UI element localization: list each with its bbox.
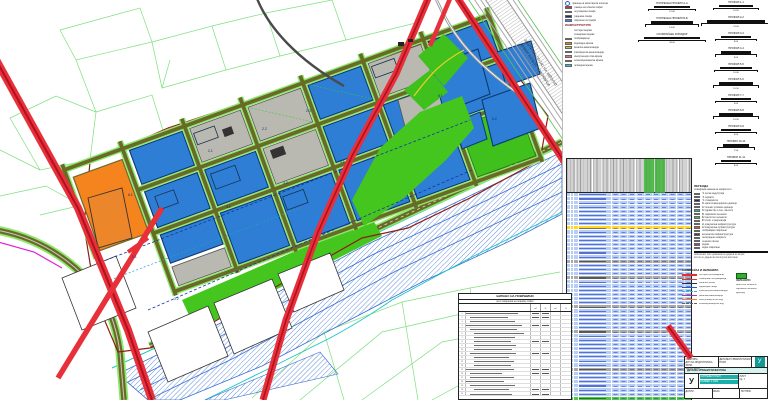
balance-table: БИЛАНС НА ПОВРШИНИ нето површина на план… (458, 293, 572, 400)
zone-label: 5.2 (492, 117, 497, 121)
legend-swatch (694, 237, 700, 239)
street-profile: ПОПРЕЧЕН ПРОФИЛ А-А12.00 (643, 2, 701, 13)
legend-swatch (694, 226, 700, 228)
profile-label: ПОПРЕЧЕН ПРОФИЛ А-А (656, 2, 687, 5)
title-block-line: бр. 7 (740, 378, 767, 381)
street-profiles-col-a: ПОПРЕЧЕН ПРОФИЛ А-А12.00ПОПРЕЧЕН ПРОФИЛ … (643, 2, 701, 48)
profile-dimension-line (715, 132, 757, 135)
legend-swatch (694, 230, 700, 232)
legend-lines: СООБРАЌАЈ И ЗЕЛЕНИЛО постојна сообраќајн… (682, 268, 768, 306)
profile-dimension-value: 21.00 (733, 26, 738, 28)
legend-main: граница на катастарска општинаграница на… (565, 1, 640, 67)
company-logo: У (755, 357, 765, 367)
legend-land-use-subtitle: планирана намена на земјиштето (694, 188, 768, 191)
zone-label: 1.2 (174, 297, 179, 301)
street-profile: ПРОФИЛ 1-110.50 (704, 1, 768, 12)
legend-swatch (565, 55, 572, 58)
zone-label: 6.1 (128, 193, 133, 197)
balance-header: м²%м²% (459, 304, 571, 312)
legend-item: гасоводна мрежа (565, 63, 640, 67)
legend-swatch (694, 247, 700, 249)
street-profile: ПРОФИЛ 4-49.00 (704, 47, 768, 58)
balance-col-header: % (561, 304, 571, 311)
circle-symbol-icon (565, 1, 570, 6)
line-sample (682, 291, 697, 292)
line-sample (682, 295, 697, 296)
street-profile: ПРОФИЛ 9-99.00 (704, 125, 768, 136)
line-sample (682, 274, 697, 276)
street-profile: ПОПРЕЧЕН ПРОФИЛ Б-Б14.00 (643, 17, 701, 28)
legend-swatch (565, 6, 572, 9)
balance-col-header: % (541, 304, 551, 311)
title-block-cell: ДАТУМ (685, 389, 713, 398)
title-block-project: ДЕТАЛЕН УРБАНИСТИЧКИ ПЛАН (719, 357, 752, 367)
plan-drawing-stage: ЗАШТИТЕН ПОЈАС НА АВТОПАТ ДЕМИР КАПИЈА -… (0, 0, 768, 400)
profile-dimension-line (715, 163, 757, 166)
profile-dimension-line (717, 147, 755, 150)
legend-swatch (694, 216, 700, 218)
legend-lines-title: СООБРАЌАЈ И ЗЕЛЕНИЛО (682, 268, 768, 272)
legend-swatch (565, 64, 572, 67)
profile-label: ПРОФИЛ 10-10 (727, 140, 745, 143)
profile-label: ПРОФИЛ 3-3 (728, 32, 744, 35)
profile-dimension-line (714, 70, 758, 73)
profile-dimension-line (713, 85, 759, 88)
legend-divider (694, 251, 768, 253)
legend-swatch (694, 220, 700, 222)
street-profile: ПРОФИЛ 10-107.50 (704, 140, 768, 151)
profile-dimension-value: 10.50 (733, 10, 738, 12)
plan-symbol: У (685, 374, 699, 388)
profile-label: ПРОФИЛ 5-5 (728, 63, 744, 66)
zone-label: 5.1 (438, 94, 443, 98)
profile-label: ПРОФИЛ 11-11 (727, 156, 745, 159)
street-profile: СООБРАЌАЕН КОРИДОР28.00 (643, 33, 701, 44)
balance-col-header: м² (531, 304, 541, 311)
line-sample (682, 283, 697, 284)
legend-swatch (565, 19, 572, 22)
zone-label: 2.1 (208, 149, 213, 153)
profile-label: ПРОФИЛ 9-9 (728, 125, 744, 128)
profile-label: ПРОФИЛ 1-1 (728, 1, 744, 4)
line-sample (682, 303, 697, 304)
legend-land-use: ЛЕГЕНДА планирана намена на земјиштето Г… (694, 184, 768, 260)
street-profile: ПРОФИЛ 6-610.50 (704, 78, 768, 89)
profile-dimension-line (638, 40, 706, 43)
street-profile: ПРОФИЛ 8-810.50 (704, 109, 768, 120)
legend-swatch (694, 223, 700, 225)
profile-dimension-line (645, 24, 699, 27)
balance-row: 21 (459, 392, 571, 396)
zone-label: 3.1 (226, 205, 231, 209)
profile-label: ПРОФИЛ 8-8 (728, 109, 744, 112)
profile-dimension-line (715, 54, 757, 57)
legend-item: дрворед (736, 291, 768, 295)
line-sample (682, 299, 697, 300)
legend-notes: забелешка: сите димензии се дадени во ме… (694, 254, 768, 260)
profile-label: ПРОФИЛ 7-7 (728, 94, 744, 97)
legend-swatch (694, 193, 700, 195)
legend-swatch (565, 51, 572, 54)
legend-swatch (565, 42, 572, 45)
zone-label: 1.1 (132, 255, 137, 259)
title-block-cell: ПОТПИС (740, 389, 767, 398)
legend-swatch (694, 240, 700, 242)
legend-swatch (694, 213, 700, 215)
profile-dimension-value: 10.50 (733, 88, 738, 90)
legend-swatch (694, 199, 700, 201)
profile-dimension-value: 14.00 (669, 27, 674, 29)
zone-label: 2.2 (262, 127, 267, 131)
legend-swatch (694, 203, 700, 205)
balance-col-header: м² (551, 304, 561, 311)
zone-label: 2.3 (306, 109, 311, 113)
parcels-table-body (567, 193, 691, 400)
title-block-footer: ДАТУМФАЗАПОТПИС (685, 389, 767, 398)
balance-body: 123456789101112131415161718192021 (459, 312, 571, 397)
street-profiles-col-b: ПРОФИЛ 1-110.50ПРОФИЛ 2-221.00ПРОФИЛ 3-3… (704, 1, 768, 171)
profile-dimension-line (713, 116, 759, 119)
profile-dimension-value: 9.00 (734, 134, 738, 136)
line-sample (682, 279, 697, 280)
profile-label: ПРОФИЛ 4-4 (728, 47, 744, 50)
title-block-sheet: ЛИСТбр. 7 (739, 374, 767, 388)
street-profile: ПРОФИЛ 3-39.00 (704, 32, 768, 43)
legend-line-item: телекомуникациски вод (682, 302, 734, 306)
parcels-table-header (567, 159, 691, 193)
right-panel: граница на катастарска општинаграница на… (562, 0, 768, 400)
street-profile: ПРОФИЛ 2-221.00 (704, 16, 768, 27)
profile-dimension-line (715, 101, 757, 104)
profile-dimension-line (648, 9, 696, 12)
street-profile: ПРОФИЛ 11-119.00 (704, 156, 768, 167)
table-row (567, 397, 691, 400)
street-profile: ПРОФИЛ 7-79.00 (704, 94, 768, 105)
profile-dimension-line (713, 8, 759, 11)
legend-swatch (565, 11, 572, 14)
title-block-teal-row: РАЗМЕР 1:1000 (700, 380, 738, 384)
profile-dimension-value: 12.00 (669, 11, 674, 13)
legend-swatch (565, 15, 572, 18)
line-sample (682, 287, 697, 288)
profile-dimension-value: 9.00 (734, 41, 738, 43)
title-block-teal-row: СИНТЕЗЕН ПЛАН (700, 375, 738, 379)
table-header-green-col-2 (655, 159, 665, 193)
legend-swatch (694, 196, 700, 198)
legend-swatch (565, 60, 572, 63)
parcels-table (566, 158, 692, 400)
profile-dimension-value: 28.00 (669, 42, 674, 44)
title-block-cell: ФАЗА (713, 389, 741, 398)
zone-label: 3.2 (283, 181, 288, 185)
table-header-green-col-1 (644, 159, 654, 193)
profile-label: СООБРАЌАЕН КОРИДОР (656, 33, 687, 36)
legend-item: водни површини (694, 246, 768, 249)
legend-swatch (565, 46, 572, 49)
profile-dimension-line (715, 39, 757, 42)
profile-dimension-line (701, 23, 768, 26)
profile-dimension-value: 10.50 (733, 119, 738, 121)
legend-swatch (694, 233, 700, 235)
profile-label: ПРОФИЛ 2-2 (728, 16, 744, 19)
street-profile: ПРОФИЛ 5-510.00 (704, 63, 768, 74)
note-line: котите се дадени во апсолутни височини (694, 257, 768, 260)
profile-dimension-value: 7.50 (734, 150, 738, 152)
profile-dimension-value: 9.00 (734, 57, 738, 59)
legend-swatch (694, 243, 700, 245)
legend-swatch (694, 206, 700, 208)
profile-dimension-value: 9.00 (734, 165, 738, 167)
title-block-teal-rows: СИНТЕЗЕН ПЛАНРАЗМЕР 1:1000 (699, 374, 739, 388)
legend-swatch (565, 38, 572, 41)
profile-label: ПРОФИЛ 6-6 (728, 78, 744, 81)
title-block: ОПШТИНАДУП ЗА ИНДУСТРИСКА ЗОНАтех.бр. 04… (684, 356, 768, 399)
profile-dimension-value: 10.00 (733, 72, 738, 74)
profile-label: ПОПРЕЧЕН ПРОФИЛ Б-Б (656, 17, 687, 20)
title-block-org: ОПШТИНАДУП ЗА ИНДУСТРИСКА ЗОНАтех.бр. 04… (685, 357, 719, 367)
zone-label: 4.1 (340, 160, 345, 164)
profile-dimension-value: 9.00 (734, 103, 738, 105)
legend-swatch (694, 209, 700, 211)
